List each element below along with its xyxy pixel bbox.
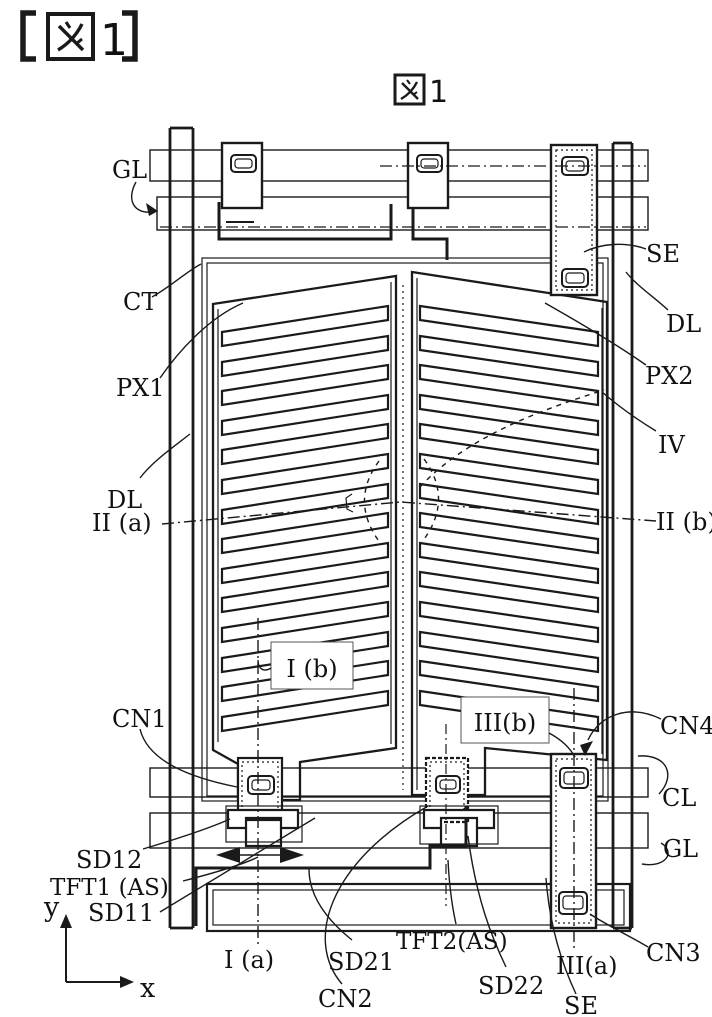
- contact-tab-1: [222, 143, 262, 208]
- label-sd21: SD21: [328, 948, 394, 976]
- label-tft2: TFT2(AS): [396, 929, 508, 955]
- patent-figure-drawing: 1 1: [0, 0, 712, 1017]
- label-gl-top: GL: [112, 156, 147, 184]
- leader-dl-left: [140, 434, 190, 478]
- label-sd22: SD22: [478, 972, 544, 1000]
- label-iii-a: III(a): [556, 952, 617, 980]
- label-cn3: CN3: [646, 939, 701, 967]
- kanji-zu-glyph: [48, 14, 93, 59]
- label-cl: CL: [662, 784, 696, 812]
- label-ii-a: II (a): [92, 509, 152, 537]
- label-cn2: CN2: [318, 985, 373, 1013]
- label-iii-b: III(b): [474, 709, 537, 737]
- label-px1: PX1: [116, 374, 165, 402]
- sd21-electrode: [424, 810, 494, 828]
- leader-tft2: [448, 860, 456, 924]
- axis-y-arrowhead-icon: [60, 914, 72, 928]
- kanji-zu-glyph-small: [395, 75, 424, 104]
- figure-caption: 1: [395, 75, 448, 110]
- leader-sd12: [143, 819, 230, 849]
- caption-number: 1: [429, 75, 448, 110]
- label-ct: CT: [123, 288, 157, 316]
- data-line-left: [170, 128, 193, 928]
- label-px2: PX2: [645, 362, 694, 390]
- center-arcs: [364, 459, 438, 544]
- arrow-left-head-icon: [216, 847, 240, 863]
- axis-x-label: x: [140, 973, 155, 1004]
- channel-arrow: [216, 847, 304, 863]
- leader-sd11: [160, 818, 315, 912]
- label-dl-right: DL: [666, 310, 701, 338]
- leader-cn1: [140, 729, 237, 787]
- sd12-electrode: [228, 810, 298, 828]
- label-iv: IV: [658, 431, 685, 459]
- leader-gl-arrowhead-icon: [146, 203, 158, 216]
- tft1-structure: [226, 806, 302, 846]
- arrow-right-head-icon: [280, 847, 304, 863]
- label-se-top: SE: [646, 240, 680, 268]
- label-cn1: CN1: [112, 705, 167, 733]
- axis-x-arrowhead-icon: [120, 976, 134, 988]
- label-i-a: I (a): [224, 946, 274, 974]
- label-sd11: SD11: [88, 899, 154, 927]
- label-sd12: SD12: [76, 846, 142, 874]
- label-i-b: I (b): [286, 655, 337, 683]
- label-se-bottom: SE: [564, 992, 598, 1017]
- label-gl-bottom: GL: [663, 835, 698, 863]
- ct-connection-trace: [219, 202, 447, 260]
- leader-iv: [602, 392, 656, 431]
- label-ii-b: II (b): [656, 508, 712, 536]
- header-title: 1: [23, 13, 135, 66]
- open-lenticular-bracket: [23, 13, 36, 59]
- se-strip-top: [551, 145, 597, 295]
- patent-figure-page: 1 1: [0, 0, 712, 1017]
- sd11-electrode: [246, 828, 281, 846]
- label-cn4: CN4: [660, 712, 712, 740]
- tft2-structure: [420, 806, 498, 846]
- label-tft1: TFT1 (AS): [50, 875, 169, 901]
- data-line-right: [613, 143, 632, 928]
- contact-tab-2: [408, 143, 448, 208]
- px2-fingers: [420, 306, 598, 731]
